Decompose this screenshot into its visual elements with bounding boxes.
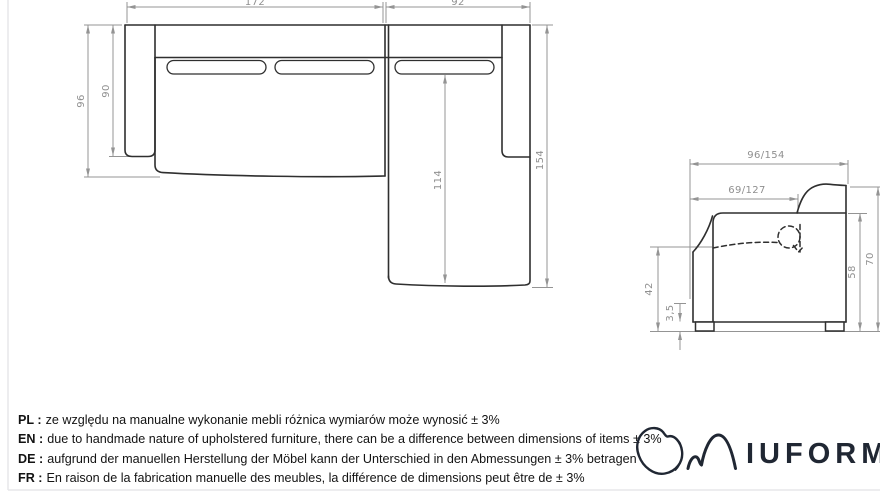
note-lang-pl: PL : [18,413,42,427]
backrest-top-curve [797,184,846,213]
note-lang-fr: FR : [18,471,42,485]
note-line-fr: FR :En raison de la fabrication manuelle… [18,469,662,488]
dim-label-chaise-total: 154 [535,150,546,170]
note-text-de: aufgrund der manuellen Herstellung der M… [47,452,636,466]
note-line-en: EN :due to handmade nature of upholstere… [18,430,662,449]
tolerance-notes: PL :ze względu na manualne wykonanie meb… [18,411,662,488]
side-view-dimensions: 96/154 69/127 42 3,5 58 70 [644,150,880,350]
back-cushion-3 [395,61,494,75]
left-ext-lines [84,25,160,177]
heart-icon [637,428,682,474]
side-view-sofa [693,184,846,331]
note-text-pl: ze względu na manualne wykonanie mebli r… [46,413,500,427]
note-line-de: DE :aufgrund der manuellen Herstellung d… [18,450,662,469]
dim-label-width-left: 172 [245,0,265,8]
top-view-dimensions: 172 92 96 90 114 154 [76,0,553,288]
note-text-fr: En raison de la fabrication manuelle des… [46,471,584,485]
dim-label-chaise-inner: 114 [433,170,444,190]
dim-label-seat-depth: 69/127 [728,185,766,196]
seat-contour-dashed [713,242,777,248]
drawing-sheet: 172 92 96 90 114 154 [0,0,880,500]
seat-front-edge [155,58,385,177]
dim-label-body-height: 58 [847,265,858,279]
cushion-roll-dashed [778,226,800,248]
note-line-pl: PL :ze względu na manualne wykonanie meb… [18,411,662,430]
dim-label-total-height: 70 [865,252,876,266]
top-view-sofa [125,25,530,286]
miuform-logo: IUFORM® [632,422,880,486]
right-armrest [502,25,530,157]
note-text-en: due to handmade nature of upholstered fu… [47,432,661,446]
miuform-logo-mark [632,423,744,485]
dim-label-depth-arm: 90 [101,84,112,98]
back-cushion-1 [167,61,266,75]
dim-label-seat-height: 42 [644,282,655,296]
top-ext-lines [127,2,530,23]
logo-wordmark: IUFORM® [746,438,880,471]
logo-text: IUFORM [746,438,880,470]
front-leg [696,322,715,331]
stylized-m [688,435,736,469]
back-leg [826,322,845,331]
back-cushion-2 [275,61,374,75]
tuft-mark-dashed [794,246,805,253]
dim-label-depth-total: 96 [76,94,87,108]
chaise-outline [389,25,531,286]
note-lang-de: DE : [18,452,43,466]
note-lang-en: EN : [18,432,43,446]
left-armrest [125,25,155,157]
section-junction-lines [385,25,389,278]
body-top-edge [713,213,846,322]
dim-label-depth-total: 96/154 [747,150,785,161]
dim-label-width-right: 92 [451,0,465,8]
dim-label-leg-height: 3,5 [665,304,676,321]
